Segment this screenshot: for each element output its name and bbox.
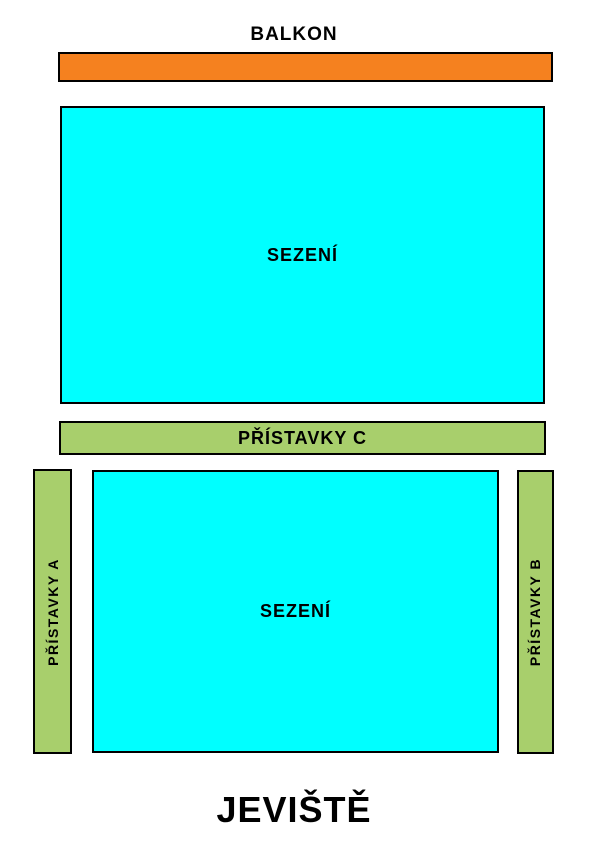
balcony-label: BALKON xyxy=(0,24,588,46)
seating-lower-section[interactable]: SEZENÍ xyxy=(92,470,499,753)
seating-lower-label: SEZENÍ xyxy=(260,601,331,622)
stage-label: JEVIŠTĚ xyxy=(0,789,588,831)
seating-upper-section[interactable]: SEZENÍ xyxy=(60,106,545,404)
annex-b-label: PŘÍSTAVKY B xyxy=(528,558,544,666)
annex-c-label: PŘÍSTAVKY C xyxy=(238,428,367,449)
balcony-section[interactable] xyxy=(58,52,553,82)
annex-c-section[interactable]: PŘÍSTAVKY C xyxy=(59,421,546,455)
annex-a-label: PŘÍSTAVKY A xyxy=(45,558,61,666)
annex-b-section[interactable]: PŘÍSTAVKY B xyxy=(517,470,554,754)
annex-a-section[interactable]: PŘÍSTAVKY A xyxy=(33,469,72,754)
venue-seating-map: BALKON SEZENÍ PŘÍSTAVKY C PŘÍSTAVKY A SE… xyxy=(0,0,612,856)
seating-upper-label: SEZENÍ xyxy=(267,245,338,266)
